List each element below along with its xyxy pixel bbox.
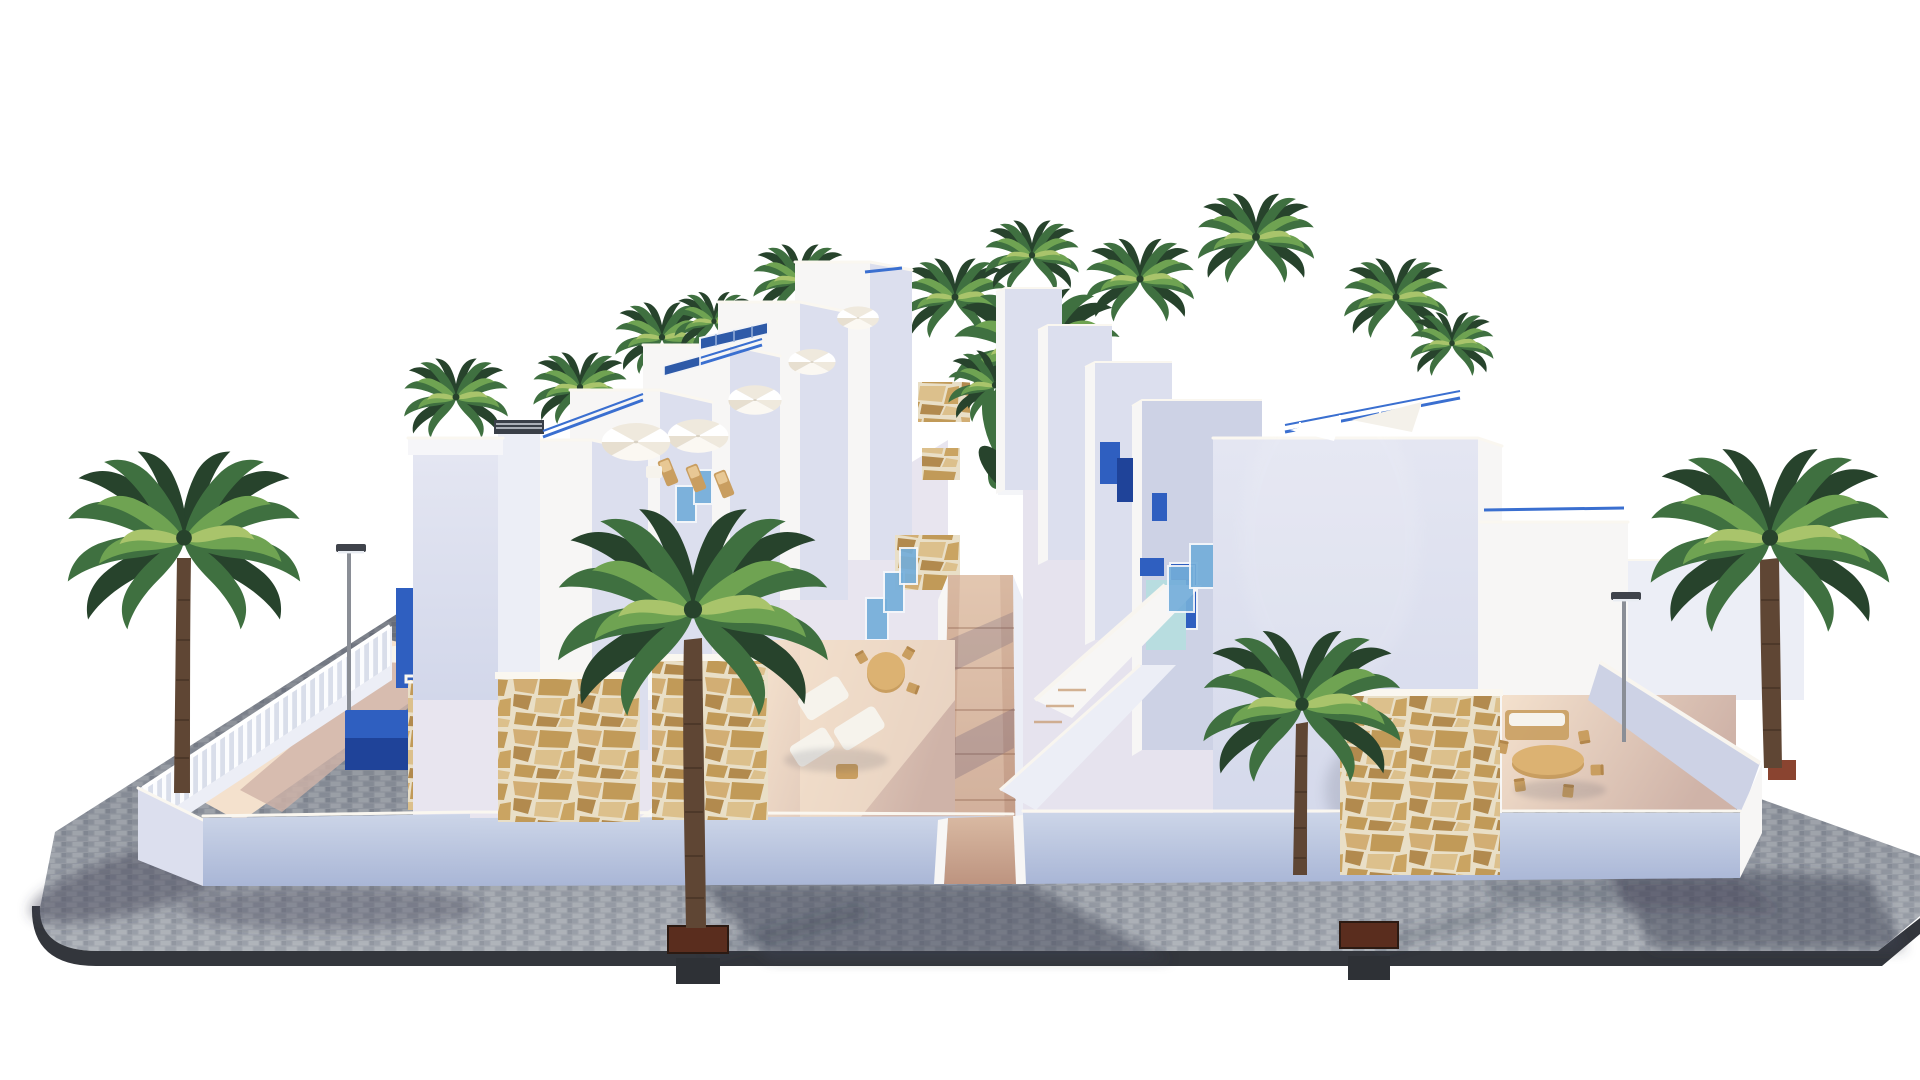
front-left-slab [413, 453, 498, 700]
blue-window [1152, 493, 1167, 521]
blue-bench [1140, 558, 1164, 576]
render-viewport: New-build seafront apartment complex - e… [0, 0, 1920, 1080]
scene-svg: New-build seafront apartment complex - e… [0, 0, 1920, 1080]
plinth-wall-left [470, 816, 1013, 886]
blue-spa-box [345, 710, 413, 770]
walkway-entrance [944, 816, 1016, 884]
blue-door [1117, 458, 1133, 502]
roof-vent-stack [498, 427, 540, 700]
stone-panel [922, 448, 960, 480]
